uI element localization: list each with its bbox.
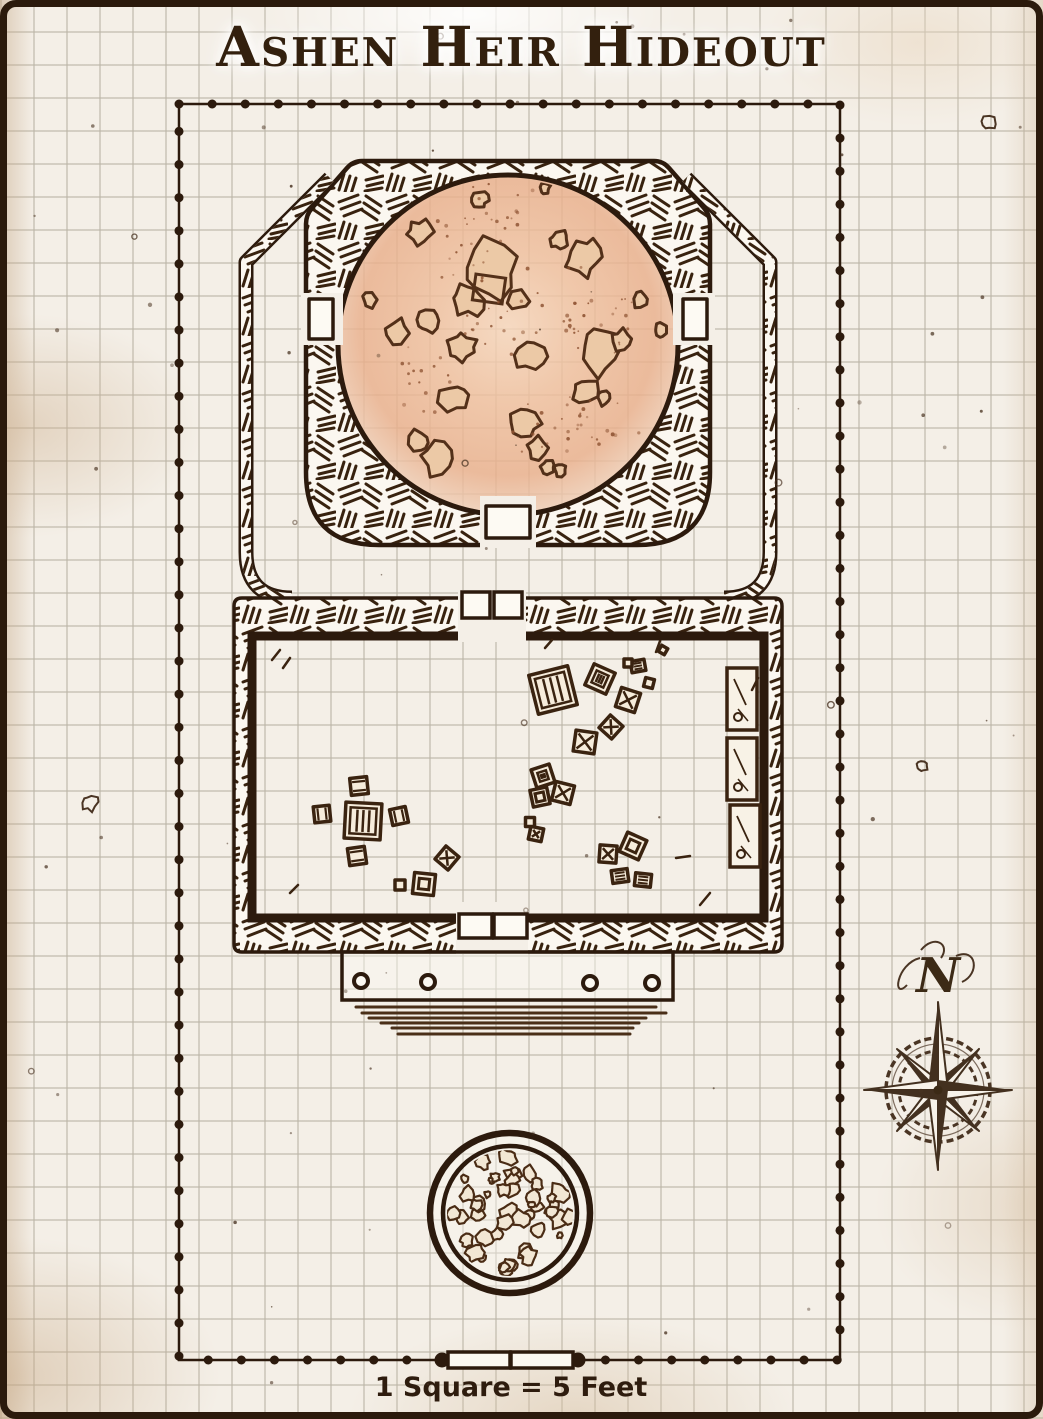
rubble-shard [460,1234,473,1248]
stool [347,846,366,865]
rubble-shard [548,1194,557,1203]
crate-x [573,730,597,754]
crate-x [435,846,459,870]
small-box [644,678,655,689]
margin-doodle [982,116,996,128]
rubble-shard [484,1191,490,1198]
entry-steps [356,1007,666,1034]
rubble-shard [461,1175,468,1183]
scale-text: 1 Square = 5 Feet [375,1372,648,1403]
crate-x [599,715,623,739]
sketch-tick [676,856,690,858]
debris-well [430,1133,590,1293]
entry-porch [342,952,673,1034]
rubble-shard [528,1202,535,1207]
door-west [301,293,343,345]
rubble-shard [557,1232,563,1238]
sketch-tick [700,893,710,905]
door-storage-south [456,902,528,954]
ritual-cavern [306,161,710,545]
map-drawing: N 1 Square = 5 Feet [0,0,1043,1419]
sketch-tick [290,885,298,893]
crate-lined [611,869,629,884]
small-box [658,645,668,655]
rubble-shard [532,1178,543,1190]
rubble-shard [447,1206,461,1220]
north-label: N [914,948,962,1004]
table [344,802,382,840]
door-east [673,293,715,345]
stool [390,807,409,826]
crate-planks [585,664,615,694]
crate-x [599,845,617,863]
door-inner-south [480,496,536,548]
crate-nested [412,872,435,895]
page-title: Ashen Heir Hideout [0,14,1043,79]
sketch-tick [545,640,552,648]
wall-shelf [727,738,757,800]
storage-room [234,590,782,954]
door-storage-north [458,590,526,642]
stool [313,805,331,823]
sketch-tick [283,658,290,668]
storage-wall [234,598,782,952]
compass-point [928,1090,948,1170]
sketch-tick [272,650,280,660]
wall-shelf [727,668,757,730]
small-box [624,659,632,667]
rock [540,183,551,193]
compass-point [928,1002,948,1090]
rubble-shard [531,1223,545,1238]
rubble-shard [497,1184,510,1196]
rock [573,381,599,403]
crate-planks [531,764,555,788]
crate-x [615,687,640,712]
rock [514,342,548,369]
crate-nested [530,787,550,807]
crate-x [551,781,574,804]
crate-planks [529,666,577,714]
compass-rose: N [864,942,1012,1170]
crate-nested [619,832,647,860]
crate-x [528,826,543,841]
storage-props [272,640,760,905]
small-box [526,818,535,827]
small-box [395,880,405,890]
rock [554,465,566,477]
compass-point [938,1080,1012,1100]
margin-doodle [917,761,928,771]
margin-doodle [82,796,98,812]
rock [656,323,667,338]
rock [437,387,468,412]
battle-map: Ashen Heir Hideout [0,0,1043,1419]
rock [363,293,378,309]
rubble-shard [491,1173,500,1182]
crate-lined [634,873,651,887]
wall-shelf [730,805,760,867]
stool [350,777,369,796]
